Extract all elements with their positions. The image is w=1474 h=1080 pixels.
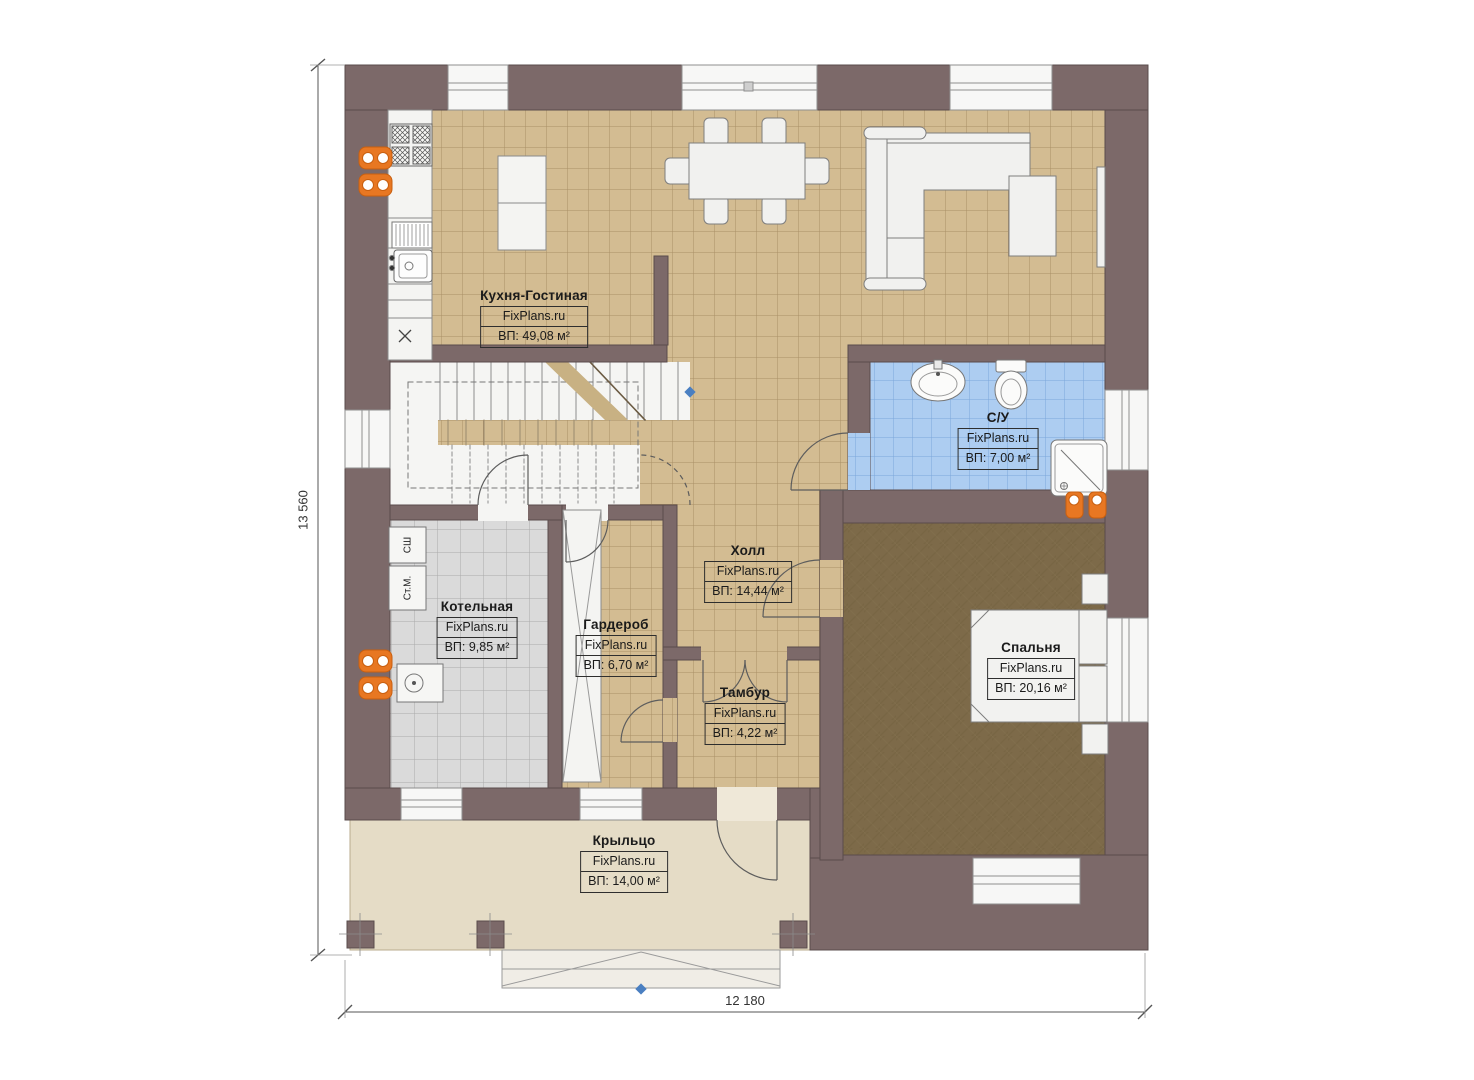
- room-area: ВП: 9,85 м²: [437, 638, 518, 658]
- window-top-2: [682, 65, 817, 110]
- window-left: [345, 410, 390, 468]
- room-name: Крыльцо: [580, 833, 668, 848]
- wall-kitchen-stub: [654, 256, 668, 345]
- window-top-1: [448, 65, 508, 110]
- porch-post: [477, 921, 504, 948]
- room-name: Тамбур: [705, 685, 786, 700]
- dimension-left-label: 13 560: [296, 490, 311, 530]
- room-name: С/У: [958, 410, 1039, 425]
- wall-stairs-boiler: [390, 505, 562, 520]
- room-name: Спальня: [987, 640, 1075, 655]
- room-watermark: FixPlans.ru: [437, 617, 518, 638]
- room-label-kitchen-living: Кухня-Гостиная FixPlans.ru ВП: 49,08 м²: [480, 288, 588, 348]
- dining-table: [689, 143, 805, 199]
- room-watermark: FixPlans.ru: [987, 658, 1075, 679]
- toilet: [995, 360, 1027, 409]
- tv-panel: [1097, 167, 1105, 267]
- floors: [350, 110, 1108, 950]
- boiler-unit: [397, 664, 443, 702]
- window-bedroom-right: [1105, 618, 1148, 722]
- kitchen-sink: [389, 250, 432, 282]
- window-bedroom-bottom: [973, 858, 1080, 904]
- dish-drainer: [392, 222, 432, 248]
- wall-right: [1105, 110, 1148, 855]
- room-watermark: FixPlans.ru: [704, 561, 792, 582]
- window-bath-right: [1105, 390, 1148, 470]
- chair: [762, 196, 786, 224]
- room-name: Холл: [704, 543, 792, 558]
- tv-stand: [1009, 176, 1056, 256]
- room-watermark: FixPlans.ru: [576, 635, 657, 656]
- dimension-bottom-label: 12 180: [725, 993, 765, 1008]
- window-top-3: [950, 65, 1052, 110]
- room-watermark: FixPlans.ru: [705, 703, 786, 724]
- chair: [704, 196, 728, 224]
- room-area: ВП: 20,16 м²: [987, 679, 1075, 699]
- room-label-porch: Крыльцо FixPlans.ru ВП: 14,00 м²: [580, 833, 668, 893]
- room-label-bathroom: С/У FixPlans.ru ВП: 7,00 м²: [958, 410, 1039, 470]
- room-area: ВП: 7,00 м²: [958, 449, 1039, 469]
- room-name: Гардероб: [576, 617, 657, 632]
- room-area: ВП: 6,70 м²: [576, 656, 657, 676]
- room-name: Котельная: [437, 599, 518, 614]
- porch-post: [780, 921, 807, 948]
- room-area: ВП: 49,08 м²: [480, 327, 588, 347]
- chair: [704, 118, 728, 146]
- nightstand: [1082, 724, 1108, 754]
- washing-machine-label: Ст.М.: [403, 576, 414, 601]
- wall-living-bath: [848, 345, 1105, 362]
- chair: [762, 118, 786, 146]
- nightstand: [1082, 574, 1108, 604]
- floor-plan-svg: [0, 0, 1474, 1080]
- wall-bedroom-left: [820, 490, 843, 860]
- room-watermark: FixPlans.ru: [958, 428, 1039, 449]
- shower-tray: [1051, 440, 1107, 496]
- room-area: ВП: 4,22 м²: [705, 724, 786, 744]
- sofa-armrest: [864, 127, 926, 139]
- window-wardrobe-bottom: [580, 788, 642, 820]
- room-area: ВП: 14,44 м²: [704, 582, 792, 602]
- room-name: Кухня-Гостиная: [480, 288, 588, 303]
- room-watermark: FixPlans.ru: [480, 306, 588, 327]
- room-label-bedroom: Спальня FixPlans.ru ВП: 20,16 м²: [987, 640, 1075, 700]
- room-label-hall: Холл FixPlans.ru ВП: 14,44 м²: [704, 543, 792, 603]
- electrical-panel-label: СШ: [403, 537, 414, 553]
- porch-post: [347, 921, 374, 948]
- pillow: [1079, 666, 1107, 722]
- window-boiler-bottom: [401, 788, 462, 820]
- room-label-vestibule: Тамбур FixPlans.ru ВП: 4,22 м²: [705, 685, 786, 745]
- wall-boiler-right: [548, 520, 562, 788]
- sofa-armrest: [864, 278, 926, 290]
- room-label-wardrobe: Гардероб FixPlans.ru ВП: 6,70 м²: [576, 617, 657, 677]
- room-area: ВП: 14,00 м²: [580, 872, 668, 892]
- room-watermark: FixPlans.ru: [580, 851, 668, 872]
- room-label-boiler: Котельная FixPlans.ru ВП: 9,85 м²: [437, 599, 518, 659]
- pillow: [1079, 610, 1107, 664]
- floor-plan-canvas: Кухня-Гостиная FixPlans.ru ВП: 49,08 м² …: [0, 0, 1474, 1080]
